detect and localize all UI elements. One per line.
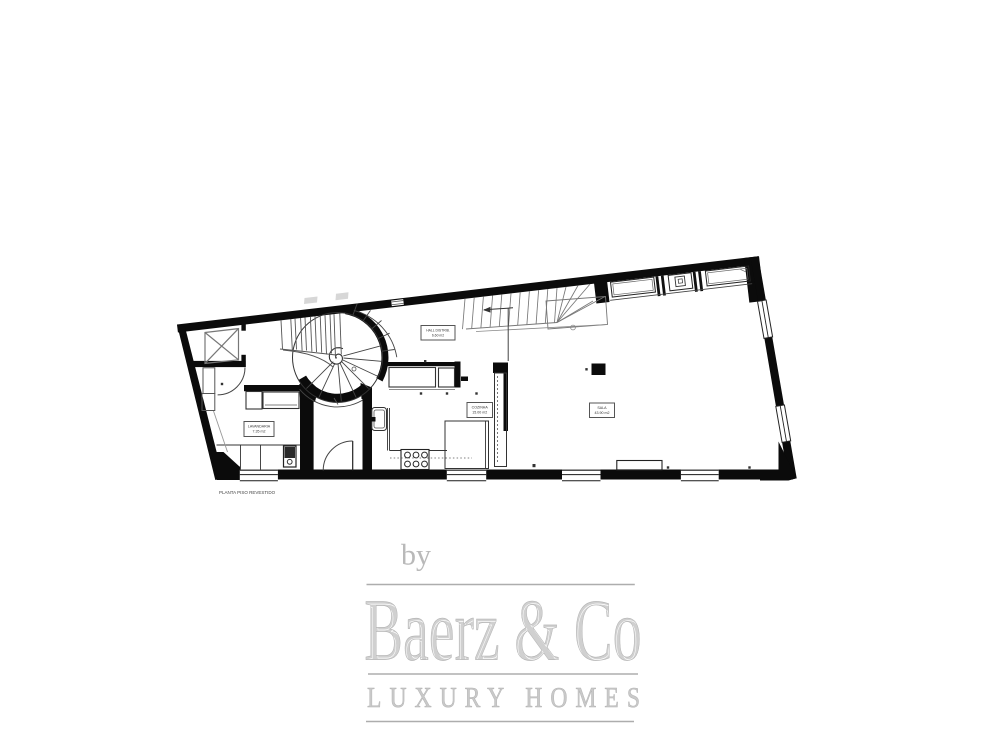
svg-text:43.90 m2: 43.90 m2 bbox=[595, 411, 610, 415]
svg-text:COZINHA: COZINHA bbox=[472, 406, 489, 410]
svg-text:7.35 m2: 7.35 m2 bbox=[253, 430, 266, 434]
svg-text:SALA: SALA bbox=[597, 406, 607, 410]
svg-text:6.60 m2: 6.60 m2 bbox=[432, 334, 444, 338]
svg-text:LAVANDARIA: LAVANDARIA bbox=[248, 425, 271, 429]
svg-text:LUXURY HOMES: LUXURY HOMES bbox=[367, 683, 648, 714]
svg-text:Baerz & Co: Baerz & Co bbox=[364, 583, 641, 680]
svg-text:HALL DISTRIB.: HALL DISTRIB. bbox=[426, 329, 450, 333]
svg-text:15.00 m2: 15.00 m2 bbox=[472, 411, 487, 415]
svg-text:PLANTA PISO REVESTIDO: PLANTA PISO REVESTIDO bbox=[219, 490, 276, 495]
svg-text:by: by bbox=[401, 539, 431, 572]
